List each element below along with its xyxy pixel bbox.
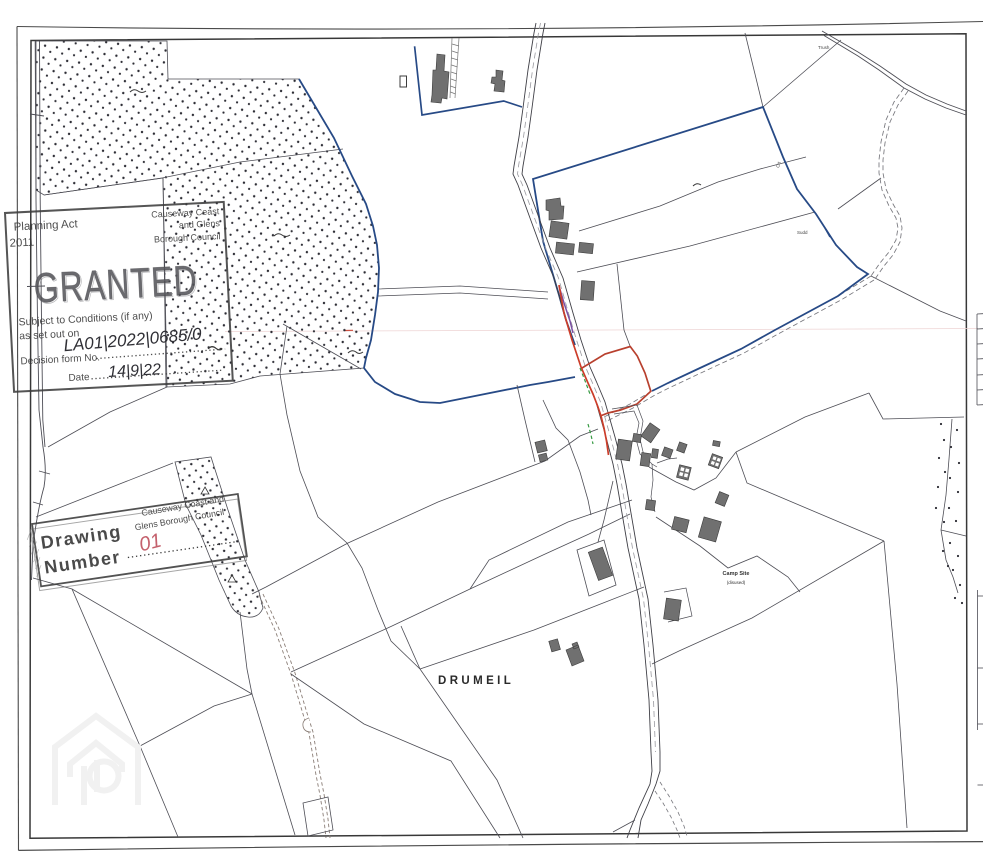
svg-text:Date: Date (68, 372, 90, 384)
svg-text:and Glens: and Glens (179, 218, 221, 230)
svg-text:2011: 2011 (9, 237, 34, 250)
svg-text:DRUMEIL: DRUMEIL (438, 675, 514, 687)
svg-text:GRANTED: GRANTED (34, 257, 200, 313)
svg-text:Sudd: Sudd (797, 230, 808, 235)
svg-text:Camp Site: Camp Site (723, 571, 750, 577)
svg-text:14|9|22: 14|9|22 (108, 361, 162, 381)
svg-text:Trush: Trush (818, 45, 830, 50)
svg-text:(disused): (disused) (727, 580, 746, 585)
